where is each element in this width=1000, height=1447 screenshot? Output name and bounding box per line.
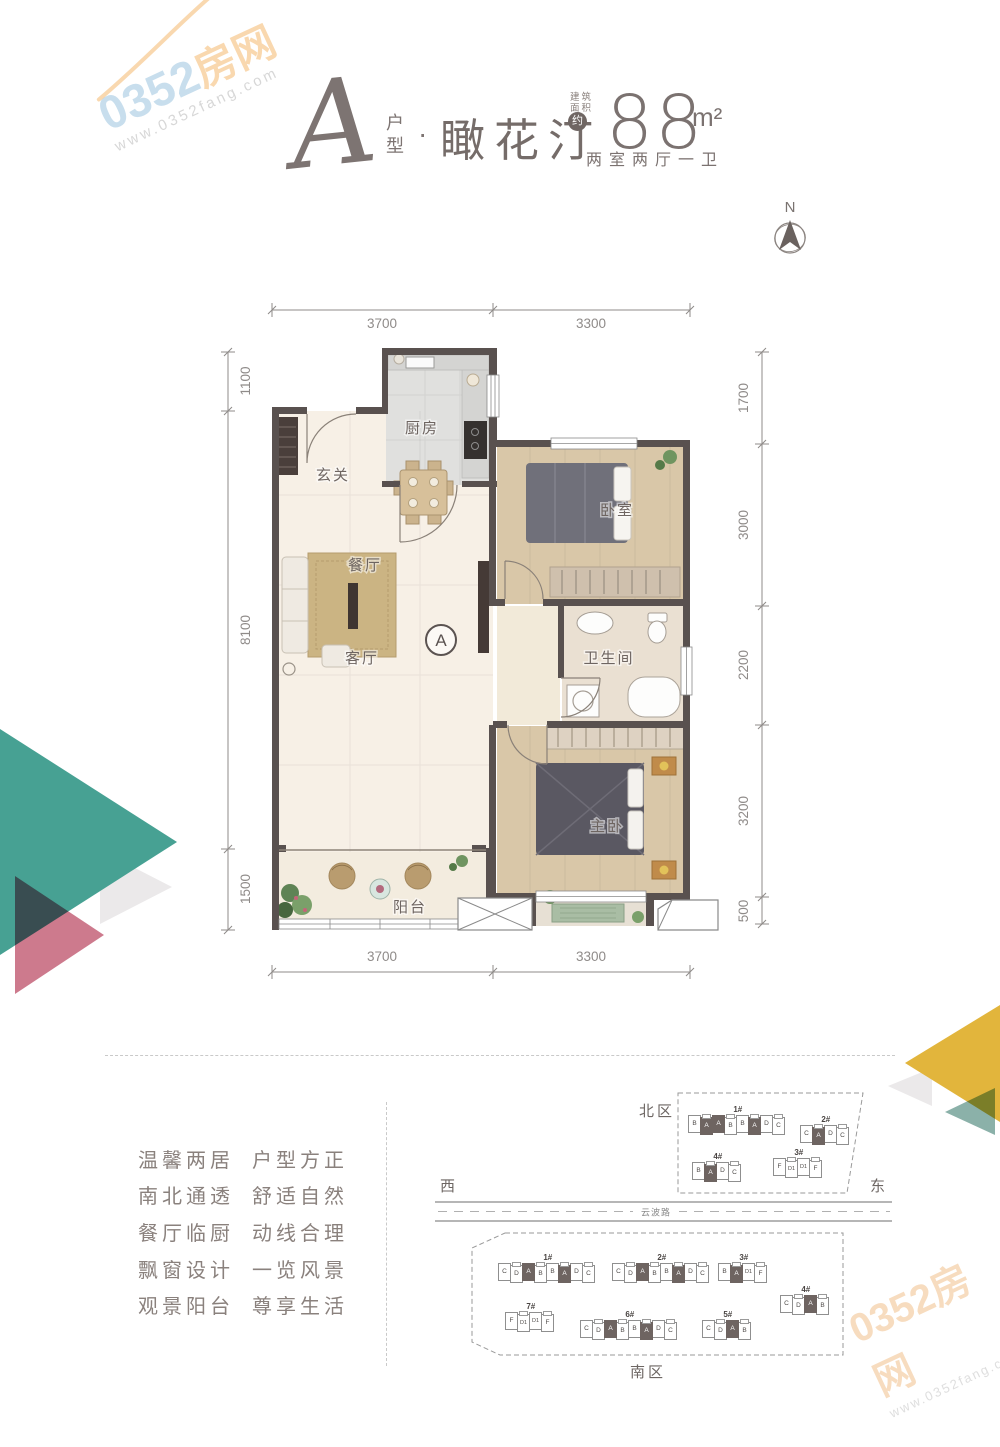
building-number: 2#: [821, 1115, 830, 1124]
unit-box-highlighted: A: [522, 1263, 535, 1281]
feature-text: 飘窗设计: [138, 1254, 234, 1283]
unit-box-highlighted: A: [604, 1320, 617, 1338]
unit-box-highlighted: A: [812, 1127, 825, 1145]
feature-text: 温馨两居: [138, 1144, 234, 1173]
unit-type-label: 户 型: [386, 112, 405, 158]
feature-text: 餐厅临厨: [138, 1217, 234, 1246]
unit-type-label-line1: 户: [386, 112, 405, 135]
unit-box: F: [754, 1265, 767, 1283]
building-number: 7#: [526, 1302, 535, 1311]
dashed-divider-horizontal: [105, 1055, 895, 1056]
building-number: 3#: [739, 1253, 748, 1262]
room-label-dining: 餐厅: [348, 557, 382, 574]
unit-box: C: [836, 1127, 849, 1145]
unit-marker-label: A: [435, 631, 447, 650]
watermark-number: 0352: [90, 48, 207, 140]
room-label-balcony: 阳台: [393, 899, 427, 916]
site-building: 6#CDABBADC: [580, 1320, 676, 1338]
unit-box: F: [809, 1160, 822, 1178]
site-plan: 云波路 北区 南区 西 东 1#BAABBADC2#CADC4#BADC3#FD…: [430, 1085, 1000, 1405]
site-building: 3#FD1D1F: [773, 1158, 821, 1176]
building-number: 6#: [625, 1310, 634, 1319]
unit-box: F: [541, 1314, 554, 1332]
approx-badge: 约: [568, 112, 587, 131]
site-building: 1#BAABBADC: [688, 1115, 784, 1133]
building-number: 2#: [657, 1253, 666, 1262]
area-note-line1: 建筑: [570, 92, 593, 103]
floor-living: [276, 411, 493, 926]
feature-text: 一览风景: [252, 1254, 348, 1283]
unit-box-highlighted: A: [704, 1164, 717, 1182]
unit-box-highlighted: A: [672, 1265, 685, 1283]
room-label-bedroom: 卧室: [600, 502, 634, 519]
feature-text: 舒适自然: [252, 1180, 348, 1209]
unit-box-highlighted: A: [726, 1320, 739, 1338]
entry-wardrobe: [276, 417, 298, 475]
unit-box-highlighted: A: [640, 1322, 653, 1340]
unit-box: B: [738, 1322, 751, 1340]
decor-triangles-left: [0, 718, 190, 1008]
feature-row: 温馨两居户型方正: [138, 1140, 348, 1177]
building-number: 3#: [794, 1148, 803, 1157]
feature-text: 观景阳台: [138, 1290, 234, 1319]
feature-list: 温馨两居户型方正 南北通透舒适自然 餐厅临厨动线合理 飘窗设计一览风景 观景阳台…: [138, 1140, 348, 1323]
area-note: 建筑 面积: [570, 92, 593, 114]
dim-top-2: 3300: [576, 316, 606, 331]
dim-bottom-2: 3300: [576, 949, 606, 964]
unit-box: C: [772, 1117, 785, 1135]
unit-box: C: [728, 1164, 741, 1182]
floor-hall: [497, 606, 560, 725]
building-number: 4#: [713, 1152, 722, 1161]
unit-box: C: [582, 1265, 595, 1283]
floorplan-page: 0352房网 www.0352fang.com 0352房网 www.0352f…: [0, 0, 1000, 1447]
feature-text: 尊享生活: [252, 1290, 348, 1319]
building-number: 1#: [733, 1105, 742, 1114]
dashed-divider-vertical: [386, 1102, 387, 1366]
dining-table: [394, 461, 453, 524]
building-number: 5#: [723, 1310, 732, 1319]
site-building: 5#CDAB: [702, 1320, 750, 1338]
unit-box-highlighted: A: [804, 1295, 817, 1313]
feature-text: 南北通透: [138, 1180, 234, 1209]
dim-right-5: 500: [736, 900, 751, 923]
dim-bottom-1: 3700: [367, 949, 397, 964]
room-label-bath: 卫生间: [583, 650, 634, 667]
room-label-entry: 玄关: [316, 467, 350, 484]
room-label-kitchen: 厨房: [405, 420, 439, 437]
dim-left-2: 8100: [238, 615, 253, 645]
unit-box-highlighted: A: [730, 1265, 743, 1283]
dim-right-1: 1700: [736, 383, 751, 413]
dim-right-2: 3000: [736, 510, 751, 540]
site-building: 1#CDABBADC: [498, 1263, 594, 1281]
room-label-living: 客厅: [345, 650, 379, 667]
dim-right-3: 2200: [736, 650, 751, 680]
unit-box: C: [664, 1322, 677, 1340]
feature-row: 南北通透舒适自然: [138, 1177, 348, 1214]
feature-row: 餐厅临厨动线合理: [138, 1213, 348, 1250]
compass-north-label: N: [785, 199, 796, 216]
site-building: 4#BADC: [692, 1162, 740, 1180]
site-building: 3#BAD1F: [718, 1263, 766, 1281]
compass-icon: N: [763, 198, 819, 264]
unit-box: B: [816, 1297, 829, 1315]
room-label-master: 主卧: [590, 818, 624, 835]
dim-top-1: 3700: [367, 316, 397, 331]
feature-row: 观景阳台尊享生活: [138, 1286, 348, 1323]
dim-left-3: 1500: [238, 874, 253, 904]
dim-left-1: 1100: [238, 366, 253, 395]
site-building: 2#CADC: [800, 1125, 848, 1143]
dim-right-4: 3200: [736, 796, 751, 826]
unit-box: C: [696, 1265, 709, 1283]
site-building: 7#FD1D1F: [505, 1312, 553, 1330]
unit-box-highlighted: A: [748, 1117, 761, 1135]
unit-box-highlighted: A: [636, 1263, 649, 1281]
unit-box-highlighted: A: [712, 1115, 725, 1133]
building-number: 1#: [543, 1253, 552, 1262]
feature-row: 飘窗设计一览风景: [138, 1250, 348, 1287]
unit-box-highlighted: A: [558, 1265, 571, 1283]
area-unit: m²: [692, 102, 722, 133]
title-separator: ·: [418, 118, 427, 150]
building-number: 4#: [801, 1285, 810, 1294]
site-building: 2#CDABBADC: [612, 1263, 708, 1281]
unit-type-label-line2: 型: [386, 135, 405, 158]
site-buildings-layer: 1#BAABBADC2#CADC4#BADC3#FD1D1F1#CDABBADC…: [430, 1085, 1000, 1405]
layout-subtitle: 两室两厅一卫: [586, 146, 724, 170]
site-building: 4#CDAB: [780, 1295, 828, 1313]
feature-text: 户型方正: [252, 1144, 348, 1173]
floor-plan: A 厨房 玄关 餐厅 客厅 卧室 卫生间 主卧 阳台 3700 3300 370…: [210, 295, 780, 995]
feature-text: 动线合理: [252, 1217, 348, 1246]
